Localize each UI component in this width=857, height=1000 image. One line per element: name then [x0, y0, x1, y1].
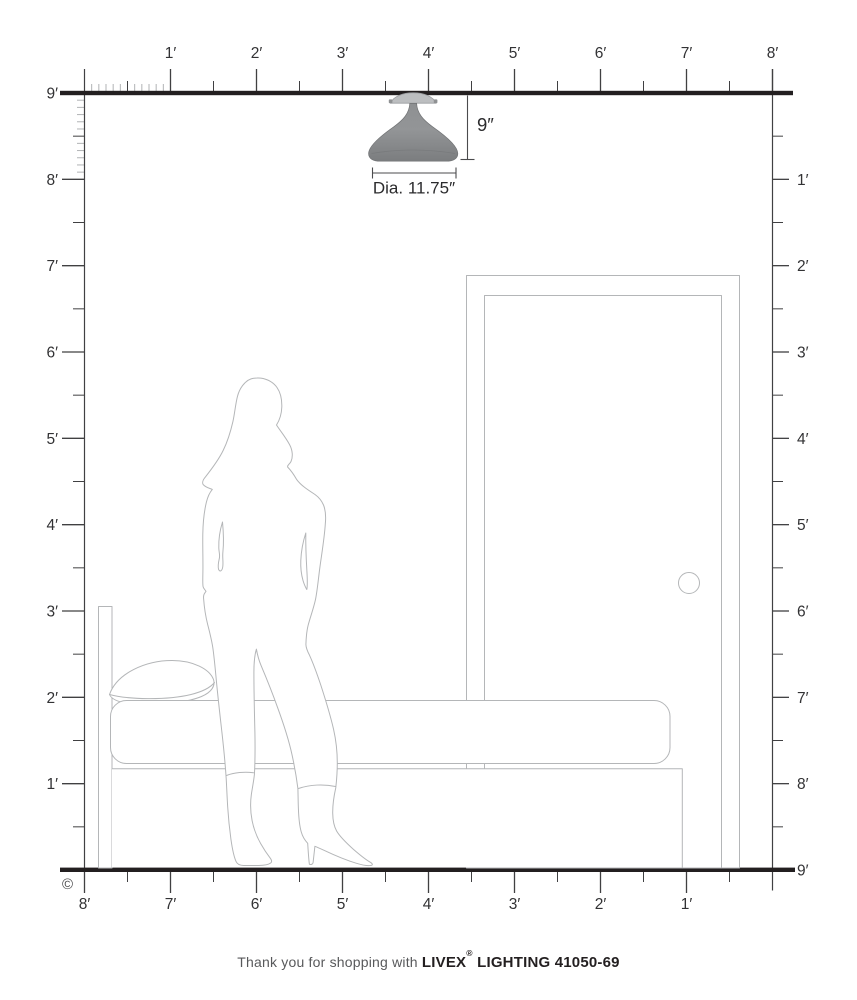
ruler-label: 7′ [46, 258, 58, 275]
registered-trademark: ® [466, 948, 472, 958]
ruler-label: 6′ [251, 896, 263, 913]
ruler-label: 8′ [767, 45, 779, 62]
ruler-label: 3′ [337, 45, 349, 62]
ruler-label: 7′ [797, 690, 809, 707]
ruler-label: 6′ [797, 604, 809, 621]
brand-name: LIVEX [422, 954, 466, 971]
ruler-label: 6′ [46, 345, 58, 362]
bed-mattress [111, 701, 671, 764]
diameter-dim-label: Dia. 11.75″ [373, 179, 455, 198]
fixture-shade [369, 103, 458, 161]
fixture-canopy-screw-right [434, 99, 438, 103]
ruler-label: 7′ [681, 45, 693, 62]
footer-prefix: Thank you for shopping with [237, 954, 418, 970]
copyright-symbol: © [62, 876, 73, 893]
ruler-label: 1′ [165, 45, 177, 62]
ruler-label: 3′ [797, 345, 809, 362]
ruler-label: 4′ [46, 517, 58, 534]
ruler-label: 4′ [797, 431, 809, 448]
ruler-label: 8′ [79, 896, 91, 913]
light-fixture [369, 93, 458, 161]
bed-base-fill [112, 769, 682, 868]
ruler-label: 5′ [46, 431, 58, 448]
ruler-label: 1′ [681, 896, 693, 913]
ruler-label: 1′ [797, 172, 809, 189]
footer: Thank you for shopping with LIVEX® LIGHT… [0, 953, 857, 971]
ruler-label: 2′ [595, 896, 607, 913]
ceiling-line [60, 91, 793, 95]
ruler-label: 1′ [46, 776, 58, 793]
height-dim-label: 9″ [477, 114, 494, 135]
ruler-label: 5′ [797, 517, 809, 534]
ruler-label: 4′ [423, 45, 435, 62]
ruler-label: 7′ [165, 896, 177, 913]
bed-headboard [99, 607, 113, 869]
ruler-label: 9′ [797, 863, 809, 880]
ruler-label: 9′ [46, 86, 58, 103]
ruler-label: 8′ [797, 776, 809, 793]
ruler-label: 6′ [595, 45, 607, 62]
ruler-label: 3′ [46, 604, 58, 621]
footer-brand: LIVEX® LIGHTING 41050-69 [422, 954, 620, 971]
ruler-label: 4′ [423, 896, 435, 913]
ruler-label: 2′ [251, 45, 263, 62]
ruler-label: 3′ [509, 896, 521, 913]
diagram-canvas: 1′2′3′4′5′6′7′8′9′8′7′6′5′4′3′2′1′1′2′3′… [0, 0, 857, 1000]
footer-model: LIGHTING 41050-69 [473, 954, 620, 971]
scale-diagram: 1′2′3′4′5′6′7′8′9′8′7′6′5′4′3′2′1′1′2′3′… [0, 0, 857, 1000]
fixture-canopy-screw-left [389, 99, 393, 103]
ruler-label: 2′ [797, 258, 809, 275]
ruler-label: 8′ [46, 172, 58, 189]
ruler-label: 2′ [46, 690, 58, 707]
ruler-label: 5′ [509, 45, 521, 62]
ruler-label: 5′ [337, 896, 349, 913]
